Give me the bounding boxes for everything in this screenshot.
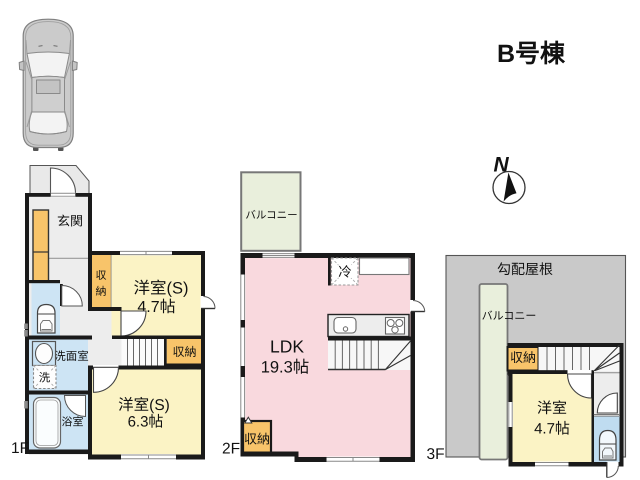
svg-text:洋室: 洋室	[537, 400, 567, 417]
svg-text:収納: 収納	[510, 350, 536, 365]
svg-text:4.7帖: 4.7帖	[534, 421, 570, 438]
svg-text:洗面室: 洗面室	[54, 350, 89, 363]
svg-text:収: 収	[96, 269, 107, 282]
svg-text:バルコニー: バルコニー	[482, 310, 537, 323]
svg-text:収納: 収納	[172, 345, 196, 359]
svg-text:3F: 3F	[427, 446, 445, 463]
svg-text:洋室(S): 洋室(S)	[118, 396, 170, 414]
svg-text:バルコニー: バルコニー	[245, 210, 297, 222]
svg-text:納: 納	[96, 285, 107, 298]
svg-text:洋室(S): 洋室(S)	[134, 279, 189, 298]
svg-text:勾配屋根: 勾配屋根	[497, 261, 553, 277]
svg-text:6.3帖: 6.3帖	[128, 414, 164, 431]
svg-text:玄関: 玄関	[57, 214, 83, 229]
svg-text:浴室: 浴室	[62, 416, 84, 429]
svg-text:B号棟: B号棟	[497, 40, 566, 68]
svg-text:1F: 1F	[11, 440, 29, 457]
svg-text:冷: 冷	[338, 265, 352, 280]
svg-text:洗: 洗	[39, 372, 51, 385]
svg-text:19.3帖: 19.3帖	[261, 359, 310, 377]
svg-text:2F: 2F	[222, 441, 240, 458]
svg-text:LDK: LDK	[270, 337, 304, 357]
svg-text:収納: 収納	[244, 432, 270, 447]
